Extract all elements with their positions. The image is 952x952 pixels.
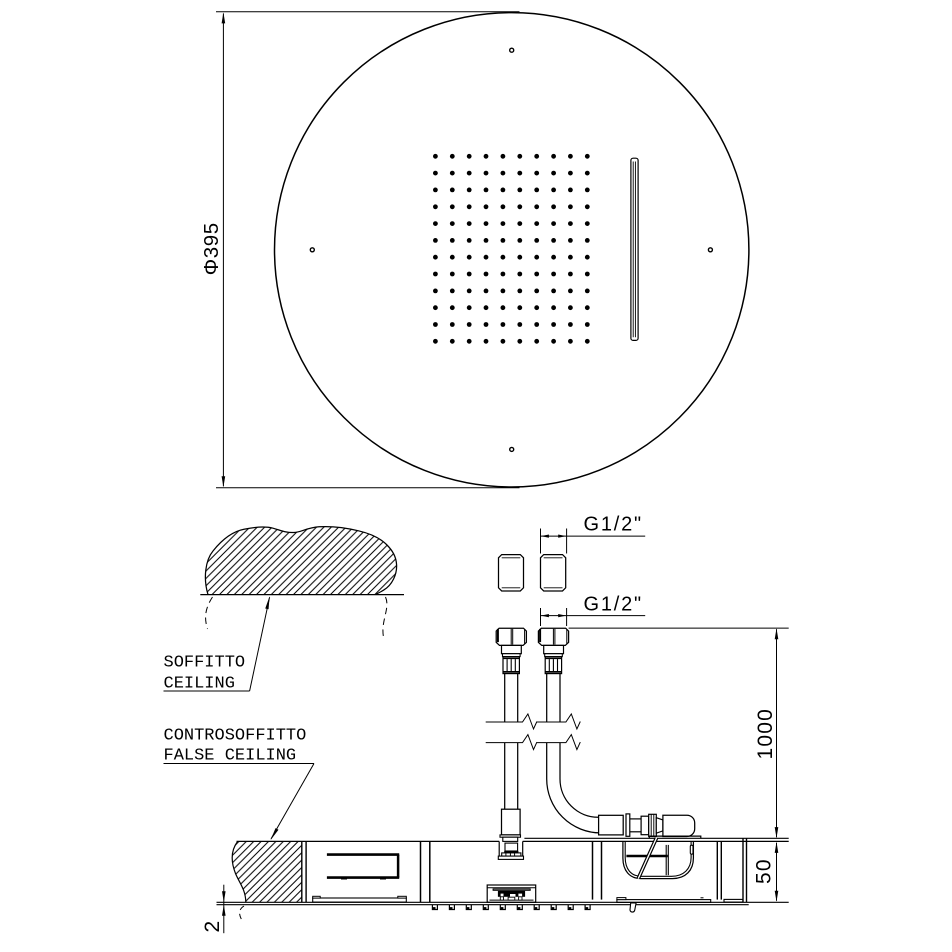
svg-text:SOFFITTO: SOFFITTO — [164, 654, 246, 673]
svg-text:G1/2": G1/2" — [584, 594, 643, 616]
svg-text:G1/2": G1/2" — [584, 514, 643, 536]
svg-text:Φ395: Φ395 — [200, 222, 223, 275]
svg-text:FALSE CEILING: FALSE CEILING — [164, 747, 297, 766]
svg-text:1000: 1000 — [754, 708, 777, 760]
svg-text:2: 2 — [201, 921, 224, 933]
svg-text:50: 50 — [753, 858, 776, 884]
svg-text:CONTROSOFFITTO: CONTROSOFFITTO — [164, 727, 307, 746]
